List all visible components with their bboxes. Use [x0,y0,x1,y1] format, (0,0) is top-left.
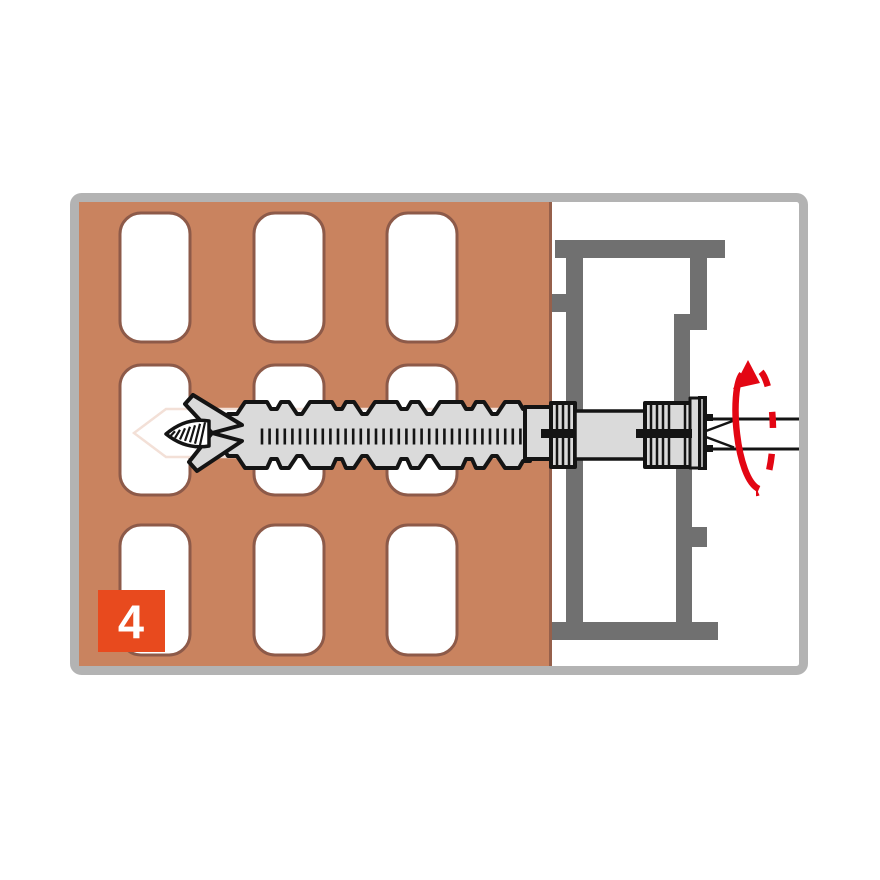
step-number: 4 [118,595,144,648]
step-badge: 4 [98,590,165,652]
frame-fixing [166,395,799,471]
installation-diagram: 4 [0,0,880,880]
illustration-canvas: 4 [0,0,880,880]
screw-shank-band-front [541,429,575,438]
screw-shank-band-rear [636,429,692,438]
